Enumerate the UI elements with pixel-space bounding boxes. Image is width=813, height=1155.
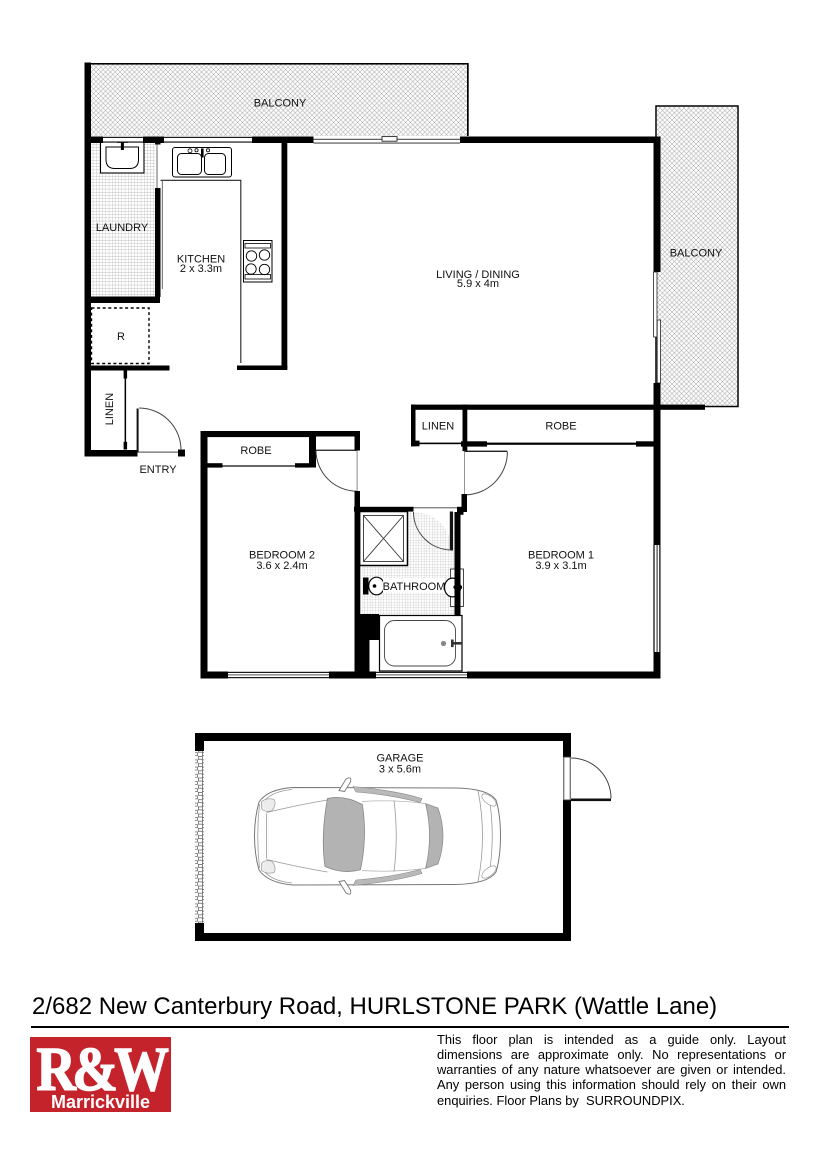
svg-text:LINEN: LINEN	[104, 393, 116, 425]
svg-text:BALCONY: BALCONY	[670, 247, 723, 259]
svg-text:3 x 5.6m: 3 x 5.6m	[379, 764, 421, 776]
svg-text:BALCONY: BALCONY	[254, 97, 307, 109]
svg-text:LINEN: LINEN	[422, 421, 454, 433]
svg-text:3.6 x 2.4m: 3.6 x 2.4m	[256, 560, 307, 572]
svg-text:ENTRY: ENTRY	[139, 464, 177, 476]
svg-text:2 x 3.3m: 2 x 3.3m	[180, 263, 222, 275]
svg-text:LAUNDRY: LAUNDRY	[96, 222, 149, 234]
svg-text:3.9 x 3.1m: 3.9 x 3.1m	[535, 560, 586, 572]
svg-text:5.9 x 4m: 5.9 x 4m	[457, 278, 499, 290]
svg-text:ROBE: ROBE	[240, 445, 271, 457]
svg-text:ROBE: ROBE	[545, 421, 576, 433]
svg-text:BATHROOM: BATHROOM	[383, 581, 446, 593]
svg-text:R: R	[117, 331, 125, 343]
